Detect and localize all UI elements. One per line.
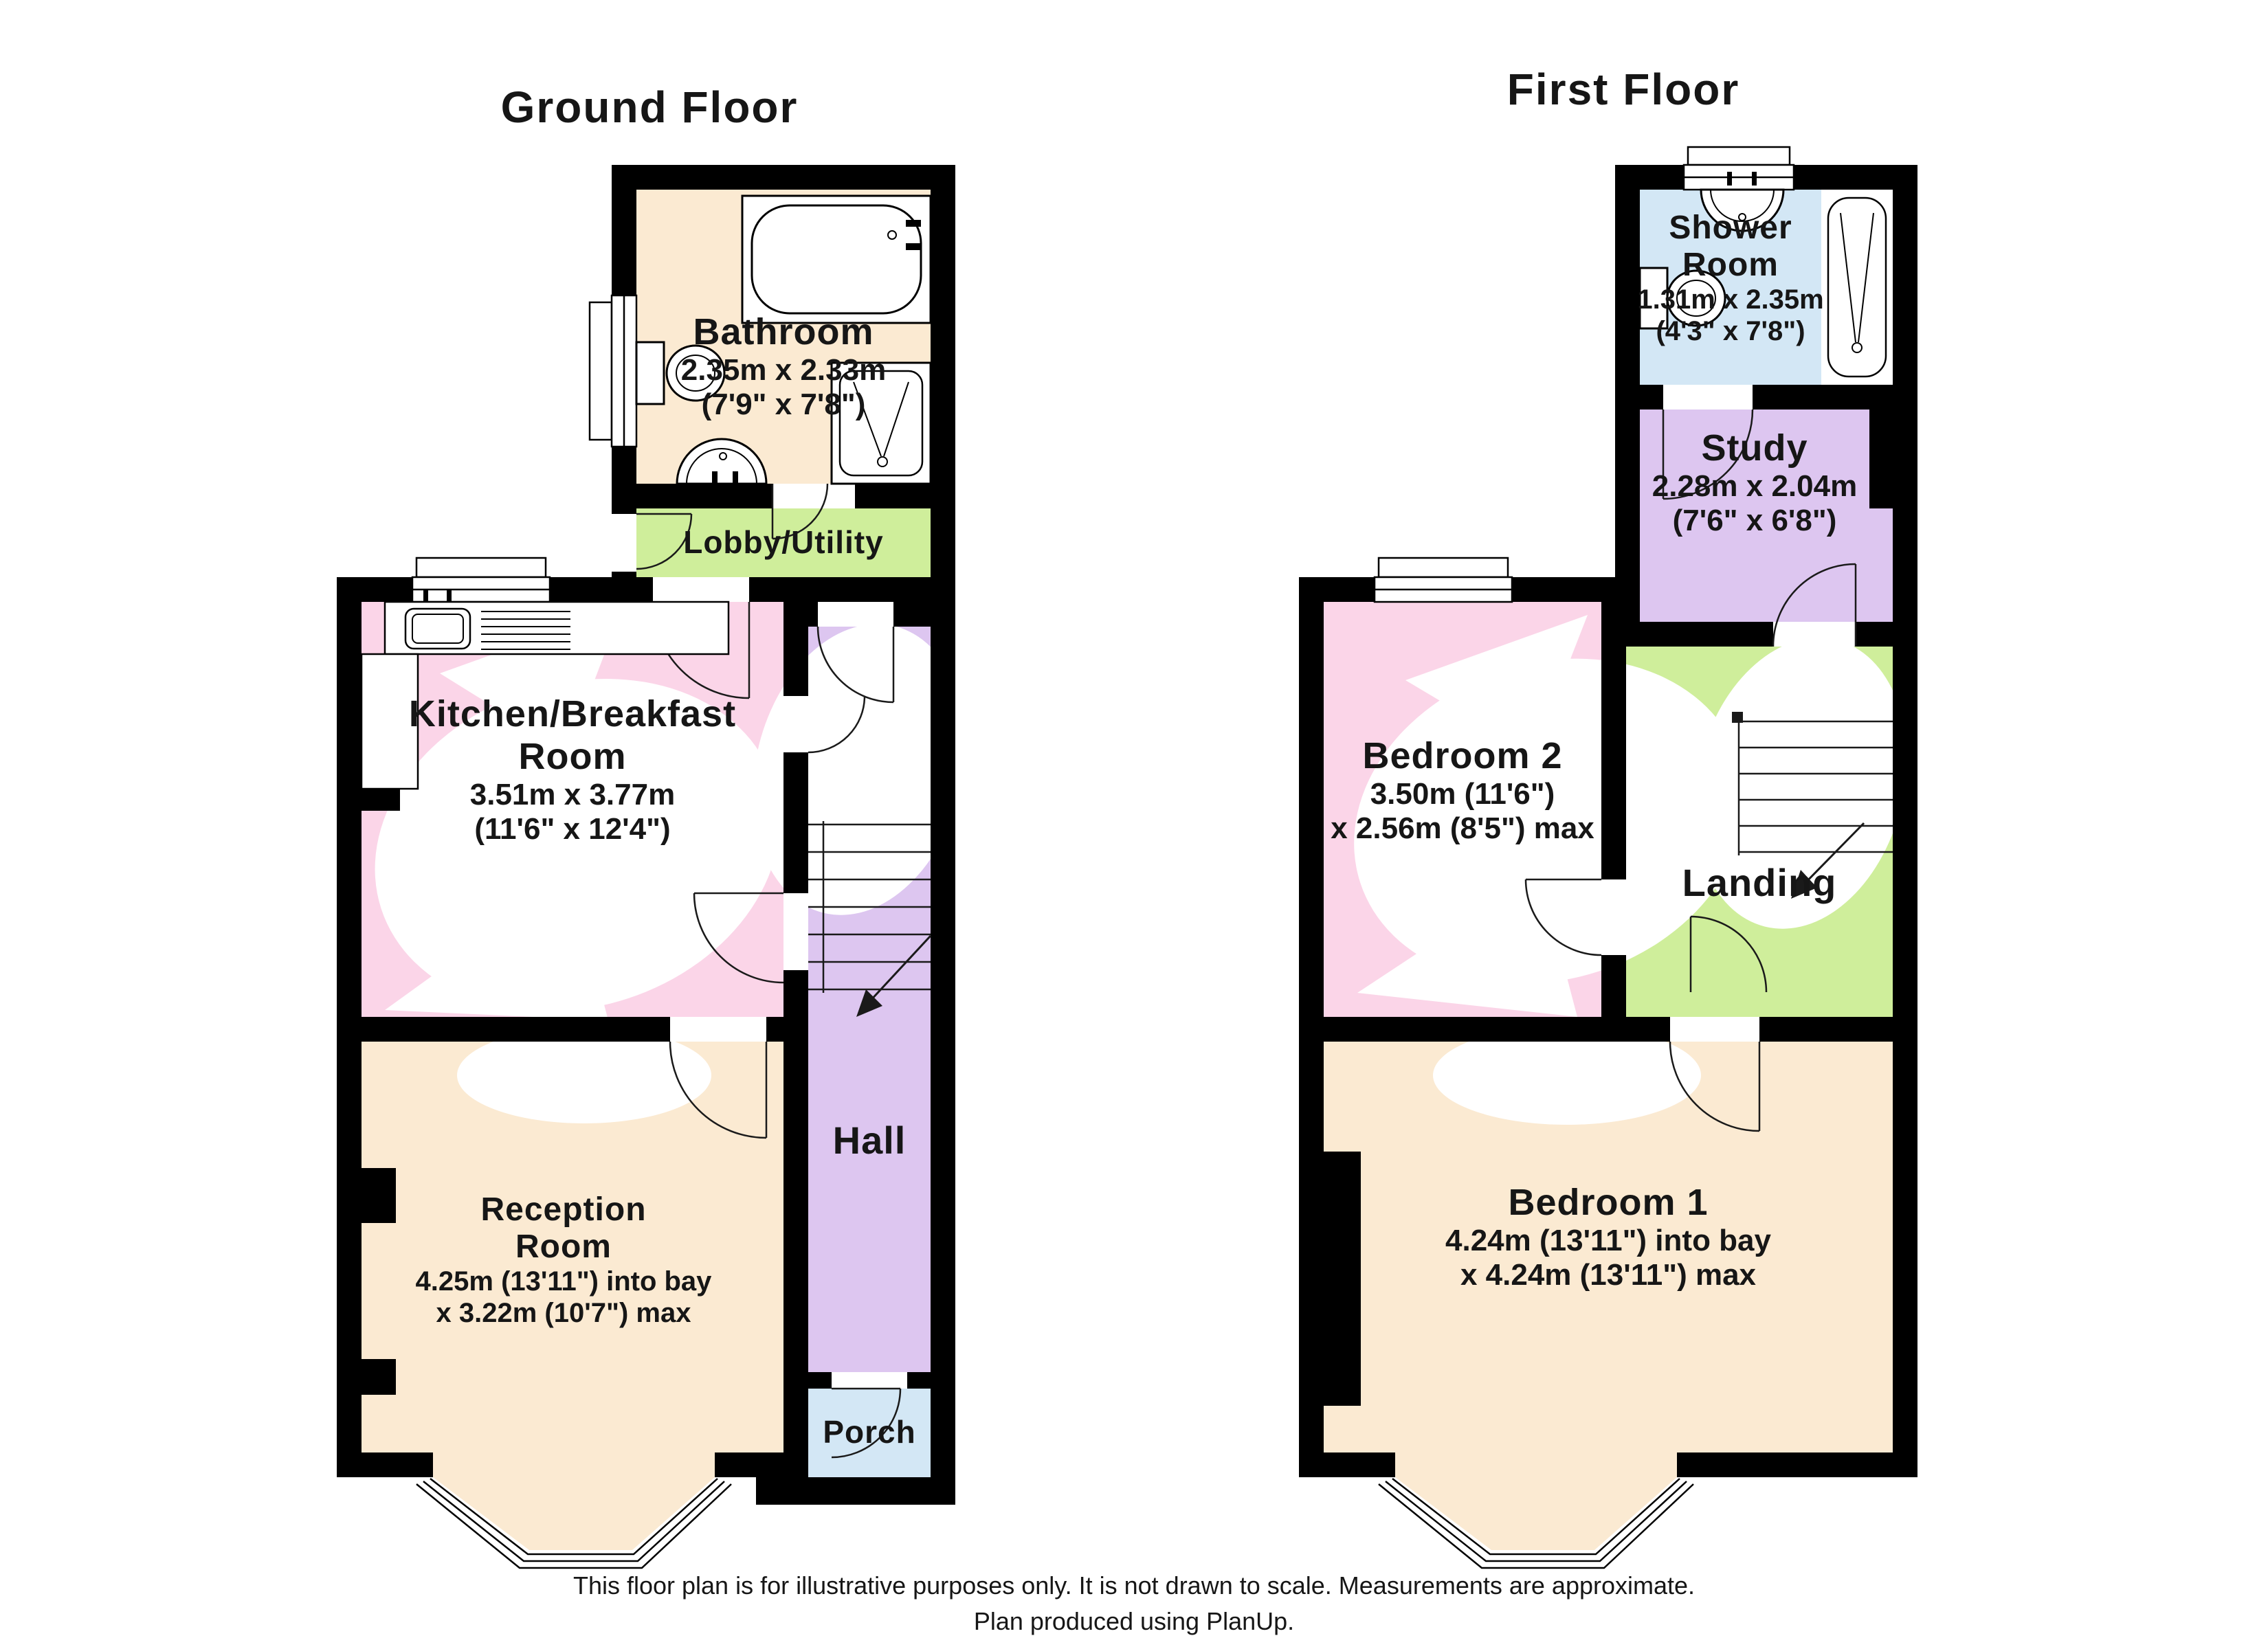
ground-floor-title: Ground Floor xyxy=(409,81,890,133)
ff-shower-tray-icon xyxy=(1828,198,1886,377)
first-floor-title: First Floor xyxy=(1383,63,1864,115)
first-floor-plan xyxy=(1299,147,1937,1568)
floorplan-page: Ground Floor First Floor Bathroom 2.35m … xyxy=(0,0,2268,1649)
shower-room-window-icon xyxy=(1684,147,1794,190)
ff-chimney-stubs xyxy=(1324,1152,1361,1406)
ff-toilet-icon xyxy=(1640,268,1725,328)
room-porch-area xyxy=(808,1389,931,1477)
disclaimer-line2: Plan produced using PlanUp. xyxy=(0,1604,2268,1639)
ff-bay-floor xyxy=(1395,1452,1677,1550)
bedroom2-window-icon xyxy=(1375,558,1512,602)
floorplan-graphics xyxy=(0,0,2268,1649)
ground-floor-plan xyxy=(331,165,994,1568)
shower-tray-icon xyxy=(832,363,931,484)
gf-bay-floor xyxy=(433,1452,715,1550)
room-study-area xyxy=(1640,410,1869,622)
bath-icon xyxy=(742,196,931,323)
bathroom-window-icon xyxy=(590,295,636,447)
kitchen-window-icon xyxy=(412,558,550,602)
room-lobby-area xyxy=(636,508,931,577)
room-study-area2 xyxy=(1869,508,1893,622)
disclaimer-line1: This floor plan is for illustrative purp… xyxy=(0,1568,2268,1604)
toilet-icon xyxy=(636,342,724,404)
